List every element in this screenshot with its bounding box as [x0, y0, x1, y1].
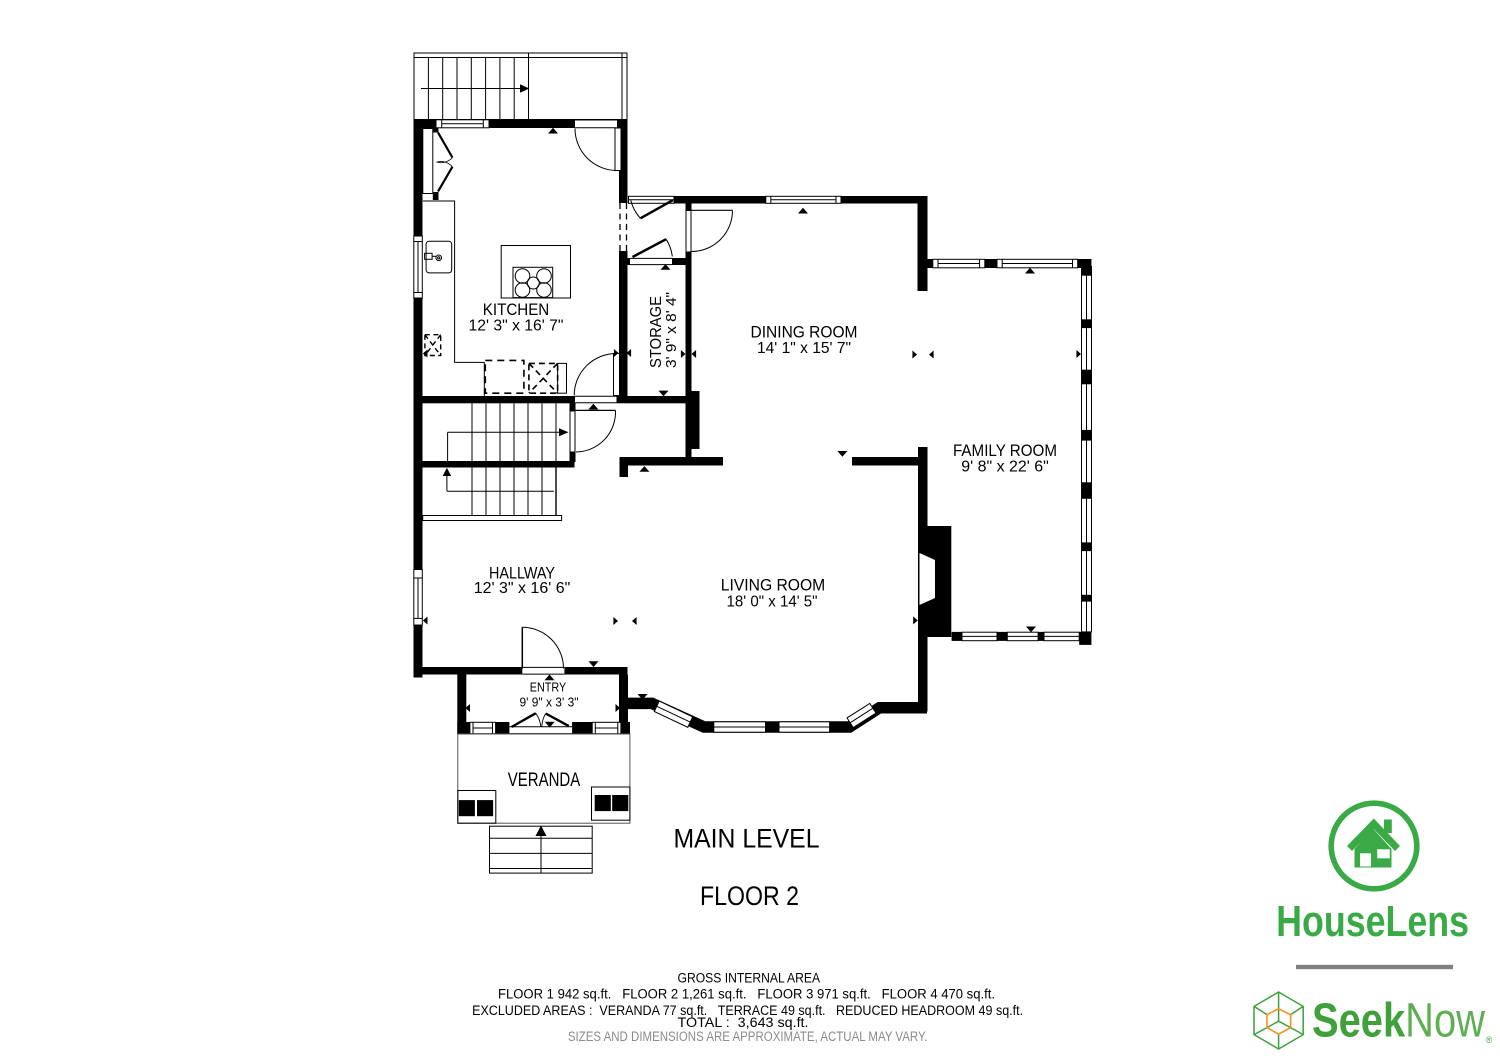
svg-text:MAIN LEVEL: MAIN LEVEL [674, 824, 820, 854]
svg-text:®: ® [1486, 1035, 1493, 1045]
svg-text:FAMILY ROOM: FAMILY ROOM [953, 441, 1057, 460]
svg-text:FLOOR 2: FLOOR 2 [700, 881, 799, 911]
svg-text:FLOOR 1 942 sq.ft. FLOOR 2 1: FLOOR 1 942 sq.ft. FLOOR 2 1,261 sq.ft. … [498, 987, 995, 1002]
svg-text:14' 1" x 15' 7": 14' 1" x 15' 7" [757, 340, 851, 357]
svg-text:DINING ROOM: DINING ROOM [751, 323, 858, 342]
svg-text:18' 0" x 14' 5": 18' 0" x 14' 5" [727, 594, 818, 611]
svg-text:ENTRY: ENTRY [530, 681, 567, 695]
svg-text:TOTAL : 3,643 sq.ft.: TOTAL : 3,643 sq.ft. [678, 1015, 809, 1030]
svg-text:LIVING ROOM: LIVING ROOM [721, 576, 826, 595]
svg-text:KITCHEN: KITCHEN [483, 300, 550, 319]
svg-text:12' 3" x 16' 7": 12' 3" x 16' 7" [469, 318, 564, 335]
svg-text:HouseLens: HouseLens [1276, 898, 1469, 946]
svg-text:SIZES AND DIMENSIONS ARE APPRO: SIZES AND DIMENSIONS ARE APPROXIMATE, AC… [568, 1029, 928, 1044]
svg-text:9' 8" x 22' 6": 9' 8" x 22' 6" [961, 459, 1049, 476]
svg-text:12' 3" x 16' 6": 12' 3" x 16' 6" [474, 580, 571, 597]
svg-text:9' 9" x 3' 3": 9' 9" x 3' 3" [520, 696, 579, 710]
svg-text:VERANDA: VERANDA [508, 769, 581, 791]
svg-text:GROSS INTERNAL AREA: GROSS INTERNAL AREA [678, 971, 821, 986]
svg-text:3' 9" x 8' 4": 3' 9" x 8' 4" [664, 292, 680, 368]
svg-text:SeekNow: SeekNow [1312, 995, 1485, 1048]
svg-text:STORAGE: STORAGE [648, 296, 665, 368]
